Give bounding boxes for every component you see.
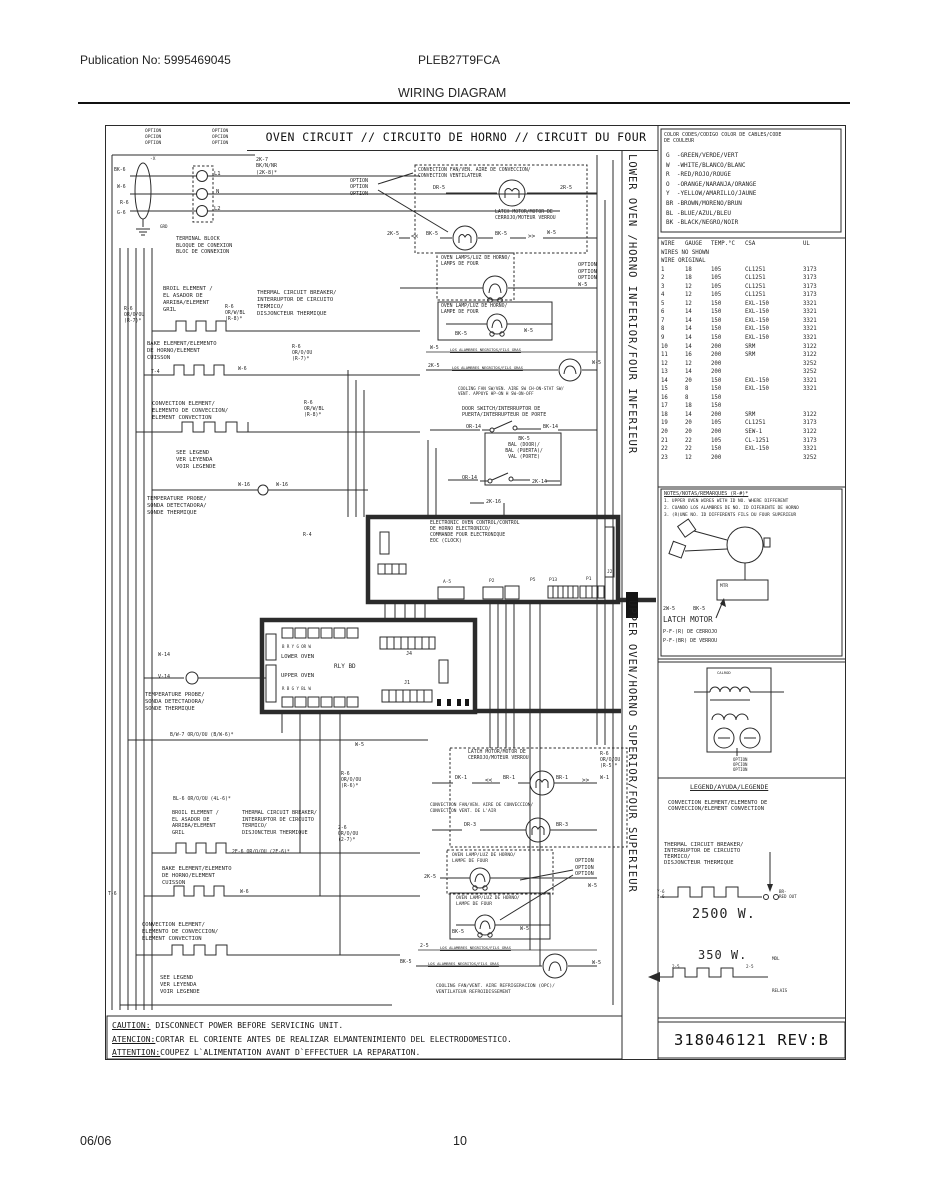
cooling-fan-label: COOLING FAN/VENT. AIRE REFRIGERACION (OP… bbox=[436, 984, 555, 996]
ribbon-wire-3: 2-5 bbox=[420, 944, 429, 950]
ribbon-wire-1: W-5 bbox=[430, 346, 439, 352]
wire-label-r6-a: R-6 OR/O/OU (R-7)* bbox=[124, 307, 144, 325]
wire-label-br3: BR-3 bbox=[556, 822, 568, 828]
red-out-label: BR- RED OUT bbox=[779, 889, 797, 900]
wire-label-x: -X bbox=[150, 157, 155, 163]
wire-label-or14-b: OR-14 bbox=[462, 475, 477, 481]
latch-motor-label-1: LATCH MOTOR/MOTOR DE CERROJO/MOTEUR VERR… bbox=[495, 210, 556, 222]
wire-label-r4: R-4 bbox=[303, 533, 312, 539]
wire-label-w16-a: W-16 bbox=[238, 482, 250, 488]
wire-label-r6-d: R-6 OR/W/BL (R-8)* bbox=[304, 401, 324, 419]
wire-label-w5-d: W-5 bbox=[355, 742, 364, 748]
ground-label: GRD bbox=[160, 224, 168, 229]
connector-label-p5: P5 bbox=[530, 578, 535, 584]
wire-label-2k5-a: 2K-5 bbox=[387, 231, 399, 237]
wire-label-2r5: 2R-5 bbox=[560, 185, 572, 191]
wire-label-w6-a: W-6 bbox=[238, 367, 247, 373]
broil-element-label-1: BROIL ELEMENT / EL ASADOR DE ARRIBA/ELEM… bbox=[163, 286, 213, 314]
ribbon-note-4: LOS ALAMBRES NEGRITOS/FILS GRAS bbox=[428, 962, 499, 967]
wire-label-bl6: BL-6 OR/O/OU (4L-6)* bbox=[173, 797, 231, 803]
option-stack-1: OPTION OPCION OPTION bbox=[145, 129, 161, 146]
terminal-l1: L1 bbox=[214, 171, 221, 178]
wire-label-r6-e: R-6 OR/O/OU (R-6)* bbox=[341, 772, 361, 790]
wire-label-bw7: B/W-7 OR/O/OU (B/W-6)* bbox=[170, 733, 234, 739]
convection-fan-label-2: CONVECTION FAN/VEN. AIRE DE CONVECCION/ … bbox=[430, 803, 533, 814]
connector-label-j2: J2 bbox=[607, 570, 612, 576]
wire-label-dk1: DK-1 bbox=[455, 775, 467, 781]
thermal-breaker-label-2: THERMAL CIRCUIT BREAKER/ INTERRUPTOR DE … bbox=[242, 810, 317, 837]
wire-label-w5-a: W-5 bbox=[547, 230, 556, 236]
wire-label-r6: R-6 bbox=[120, 201, 129, 207]
legend-option-caption: OPTION OPCION OPTION bbox=[733, 757, 747, 772]
wire-label-26: 2-6 OR/O/OU (2-7)* bbox=[338, 826, 358, 844]
bake-element-label-1: BAKE ELEMENT/ELEMENTO DE HORNO/ELEMENT C… bbox=[147, 341, 217, 362]
connector-label-p2: P2 bbox=[489, 579, 494, 585]
wire-label-w6: W-6 bbox=[117, 185, 126, 191]
probe-label-2: TEMPERATURE PROBE/ SONDA DETECTADORA/ SO… bbox=[145, 692, 205, 713]
thermal-breaker-label-1: THERMAL CIRCUIT BREAKER/ INTERRUPTOR DE … bbox=[257, 290, 336, 318]
oven-lamp-label-2: OVEN LAMP/LUZ DE HORNO/ LAMPE DE FOUR bbox=[452, 853, 516, 865]
see-legend-label-2: SEE LEGEND VER LEYENDA VOIR LEGENDE bbox=[160, 975, 200, 996]
ribbon-note-1: LOS ALAMBRES NEGRITOS/FILS GRAS bbox=[450, 348, 521, 353]
terminal-n: N bbox=[216, 189, 219, 196]
ribbon-note-2: LOS ALAMBRES NEGRITOS/FILS GRAS bbox=[452, 366, 523, 371]
relay-letters-top: B R Y G OR W bbox=[282, 644, 311, 649]
wire-label-w5-e: W-5 bbox=[588, 883, 597, 889]
terminal-block-label: TERMINAL BLOCK BLOQUE DE CONEXION BLOC D… bbox=[176, 236, 232, 256]
wire-label-br1-b: BR-1 bbox=[556, 775, 568, 781]
option-stack-2: OPTION OPCION OPTION bbox=[212, 129, 228, 146]
bake-element-label-2: BAKE ELEMENT/ELEMENTO DE HORNO/ELEMENT C… bbox=[162, 866, 232, 887]
connector-label-j1: J1 bbox=[404, 680, 410, 686]
chevron-right-1: >> bbox=[528, 233, 535, 241]
lower-oven-relay-label: LOWER OVEN bbox=[281, 654, 314, 661]
ribbon-note-3: LOS ALAMBRES NEGRITOS/FILS GRAS bbox=[440, 946, 511, 951]
broil-element-label-2: BROIL ELEMENT / EL ASADOR DE ARRIBA/ELEM… bbox=[172, 810, 219, 837]
terminal-l2: L2 bbox=[214, 206, 221, 213]
relay-letters-bottom: R B G Y BL W bbox=[282, 686, 311, 691]
option-callout-2: OPTION OPTION OPTION W-5 bbox=[578, 262, 597, 289]
mtr-label: MTR bbox=[720, 584, 728, 590]
wire-label-bk5-c: BK-5 bbox=[455, 331, 467, 337]
wire-label-w5-f: W-5 bbox=[520, 926, 529, 932]
door-switch-label-1: DOOR SWITCH/INTERRUPTOR DE PUERTA/INTERR… bbox=[462, 406, 546, 419]
eoc-label: ELECTRONIC OVEN CONTROL/CONTROL DE HORNO… bbox=[430, 521, 520, 546]
wire-label-bk5-a: BK-5 bbox=[426, 231, 438, 237]
convection-element-label-2: CONVECTION ELEMENT/ ELEMENTO DE CONVECCI… bbox=[142, 922, 218, 943]
wire-label-w5-c: W-5 bbox=[592, 360, 601, 366]
oven-lamp-label-3: OVEN LAMP/LUZ DE HORNO/ LAMPE DE FOUR bbox=[456, 896, 520, 908]
oven-lamp-label-1: OVEN LAMP/LUZ DE HORNO/ LAMPE DE FOUR bbox=[441, 304, 507, 316]
wire-label-or14-a: OR-14 bbox=[466, 424, 481, 430]
chevron-right-2: >> bbox=[582, 777, 589, 785]
wire-label-bk5-d: BK-5 bbox=[452, 929, 464, 935]
ribbon-wire-2: 2K-5 bbox=[428, 364, 440, 370]
wire-label-2k16: 2K-16 bbox=[486, 499, 501, 505]
relay-board-label: RLY BD bbox=[334, 663, 356, 671]
connector-label-a5: A-5 bbox=[443, 580, 451, 586]
relais-label: RELAIS bbox=[772, 988, 787, 993]
wire-label-bk6: BK-6 bbox=[114, 168, 126, 174]
wire-label-25-a: 2-5 bbox=[672, 964, 680, 969]
diagram-labels-layer: OPTION OPCION OPTIONOPTION OPCION OPTION… bbox=[0, 0, 927, 1200]
upper-oven-relay-label: UPPER OVEN bbox=[281, 673, 314, 680]
mdl-label: MDL bbox=[772, 956, 780, 961]
wire-label-w14: W-14 bbox=[158, 652, 170, 658]
wire-label-y6: Y-6 2-6 bbox=[657, 889, 665, 900]
option-callout-3: OPTION OPTION OPTION bbox=[575, 858, 594, 878]
latch-motor-label-2: LATCH MOTOR/MOTOR DE CERROJO/MOTEUR VERR… bbox=[468, 750, 529, 762]
cooling-fan-sw-label: COOLING FAN SW/VEN. AIRE SW CH-ON-STAT S… bbox=[458, 386, 564, 397]
wire-label-v14: V-14 bbox=[158, 674, 170, 680]
wire-label-br1-a: BR-1 bbox=[503, 775, 515, 781]
wire-label-r6-f: R-6 OR/O/OU (R-5)* bbox=[600, 752, 620, 770]
wire-label-w5-g: W-5 bbox=[592, 960, 601, 966]
wire-label-r6-b: R-6 OR/W/BL (R-8)* bbox=[225, 305, 245, 323]
wire-label-t4: T-4 bbox=[151, 370, 160, 376]
wire-label-bk5-b: BK-5 bbox=[495, 231, 507, 237]
wire-label-2e6: 2E-6 OR/O/OU (2E-6)* bbox=[232, 850, 290, 856]
wire-label-w6-b: W-6 bbox=[240, 890, 249, 896]
ribbon-wire-4: BK-5 bbox=[400, 960, 412, 966]
wire-label-dr3: DR-3 bbox=[464, 822, 476, 828]
wire-label-2k14: 2K-14 bbox=[532, 479, 547, 485]
chevron-left-2: << bbox=[485, 777, 492, 785]
legend-figure-caption: CALROD bbox=[717, 671, 731, 676]
connector-label-p1: P1 bbox=[586, 577, 591, 583]
wire-label-2k7: 2K-7 BK/N/NR (2K-8)* bbox=[256, 157, 277, 176]
chevron-left-1: << bbox=[411, 233, 418, 241]
wire-label-w5-b: W-5 bbox=[524, 328, 533, 334]
wire-label-r6-c: R-6 OR/O/OU (R-7)* bbox=[292, 345, 312, 363]
wire-label-25-b: 2-5 bbox=[746, 964, 754, 969]
door-box-label: BK-5 BAL (DOOR)/ BAL (PUERTA)/ VAL (PORT… bbox=[487, 437, 561, 462]
service-manual-page: Publication No: 5995469045 PLEB27T9FCA W… bbox=[0, 0, 927, 1200]
convection-fan-label-1: CONVECTION FAN/VEN. AIRE DE CONVECCION/ … bbox=[418, 168, 531, 180]
convection-element-label-1: CONVECTION ELEMENT/ ELEMENTO DE CONVECCI… bbox=[152, 401, 228, 422]
wire-label-2k5-b: 2K-5 bbox=[424, 874, 436, 880]
wire-label-w16-b: W-16 bbox=[276, 482, 288, 488]
connector-label-p13: P13 bbox=[549, 578, 557, 584]
probe-label-1: TEMPERATURE PROBE/ SONDA DETECTADORA/ SO… bbox=[147, 496, 207, 517]
wire-label-t6: T-6 bbox=[108, 892, 117, 898]
option-callout-1: OPTION OPTION OPTION bbox=[350, 178, 368, 197]
connector-label-j4: J4 bbox=[406, 651, 412, 657]
see-legend-label-1: SEE LEGEND VER LEYENDA VOIR LEGENDE bbox=[176, 450, 216, 471]
wire-label-w1: W-1 bbox=[600, 775, 609, 781]
wire-label-bk14: BK-14 bbox=[543, 424, 558, 430]
wire-label-dr5: DR-5 bbox=[433, 185, 445, 191]
wire-label-g6: G-6 bbox=[117, 211, 126, 217]
oven-lamps-label: OVEN LAMPS/LUZ DE HORNO/ LAMPS DE FOUR bbox=[441, 256, 510, 268]
